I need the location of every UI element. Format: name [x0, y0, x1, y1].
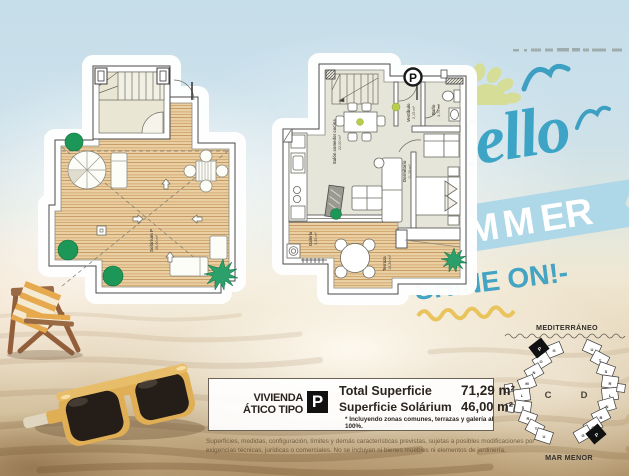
svg-text:Baño: Baño [431, 104, 436, 115]
svg-text:13,30 m²: 13,30 m² [388, 254, 392, 270]
svg-text:22,00 m²: 22,00 m² [338, 134, 342, 150]
svg-text:Vestíbulo: Vestíbulo [406, 103, 411, 122]
svg-text:B: B [600, 415, 603, 420]
svg-text:P: P [409, 71, 417, 85]
svg-text:D: D [581, 390, 588, 401]
svg-text:S: S [522, 405, 525, 410]
svg-text:2,15 m²: 2,15 m² [412, 105, 416, 119]
svg-text:M: M [500, 200, 538, 246]
svg-text:N: N [606, 404, 609, 409]
svg-text:MEDITERRÁNEO: MEDITERRÁNEO [536, 323, 598, 332]
svg-text:Solárium P: Solárium P [149, 229, 154, 252]
svg-text:46,00 m²: 46,00 m² [155, 234, 159, 250]
svg-text:Galería: Galería [308, 231, 313, 246]
svg-text:U: U [591, 347, 594, 352]
svg-text:Salón comedor cocina: Salón comedor cocina [332, 119, 337, 164]
svg-text:Terraza: Terraza [382, 256, 387, 271]
svg-text:S: S [605, 369, 608, 374]
svg-text:C: C [545, 390, 552, 401]
svg-text:R: R [609, 381, 612, 386]
svg-text:11,20 m²: 11,20 m² [408, 164, 412, 179]
svg-text:3,35 m²: 3,35 m² [314, 231, 318, 245]
svg-text:O: O [591, 425, 594, 430]
svg-text:R: R [527, 416, 530, 421]
svg-text:O: O [539, 359, 542, 364]
svg-text:G: G [552, 348, 555, 353]
svg-text:3,75 m²: 3,75 m² [437, 103, 441, 117]
svg-text:N: N [533, 370, 536, 375]
svg-text:Dormitorio: Dormitorio [402, 160, 407, 182]
